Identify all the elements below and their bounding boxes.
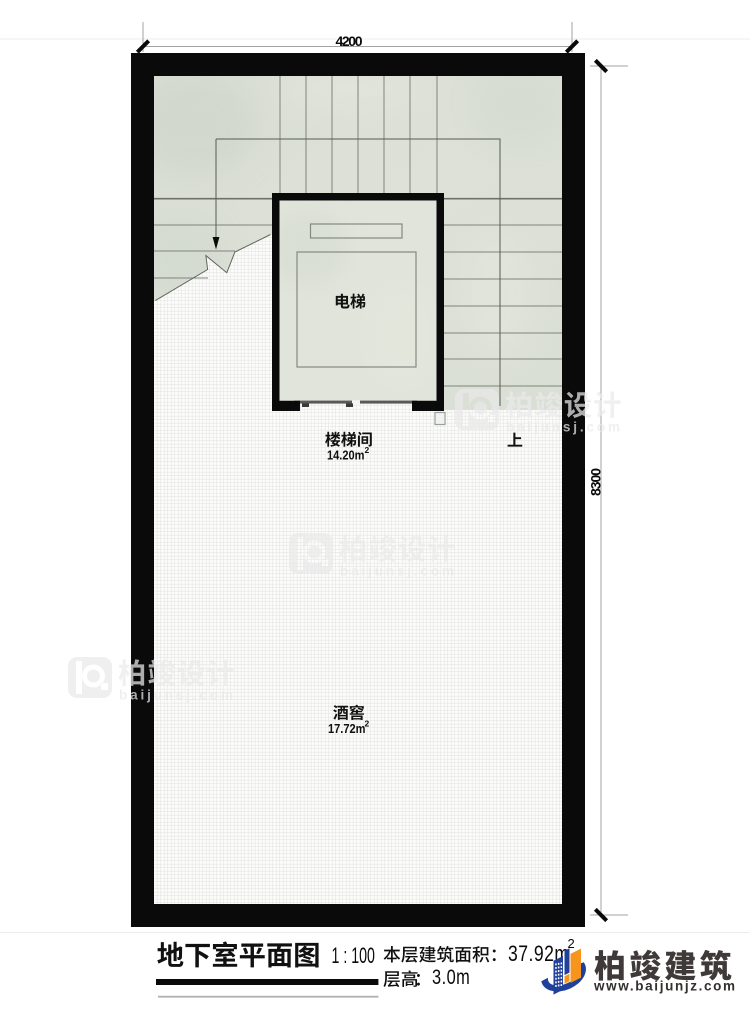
svg-text:1 : 100: 1 : 100 — [332, 943, 375, 968]
svg-text:3.0m: 3.0m — [432, 965, 470, 988]
svg-text:8300: 8300 — [588, 468, 604, 496]
svg-text:17.72m: 17.72m — [328, 721, 365, 736]
svg-text:4200: 4200 — [336, 33, 363, 49]
svg-text:2: 2 — [365, 719, 370, 729]
svg-text:14.20m: 14.20m — [327, 448, 364, 463]
svg-text:2: 2 — [365, 445, 370, 455]
